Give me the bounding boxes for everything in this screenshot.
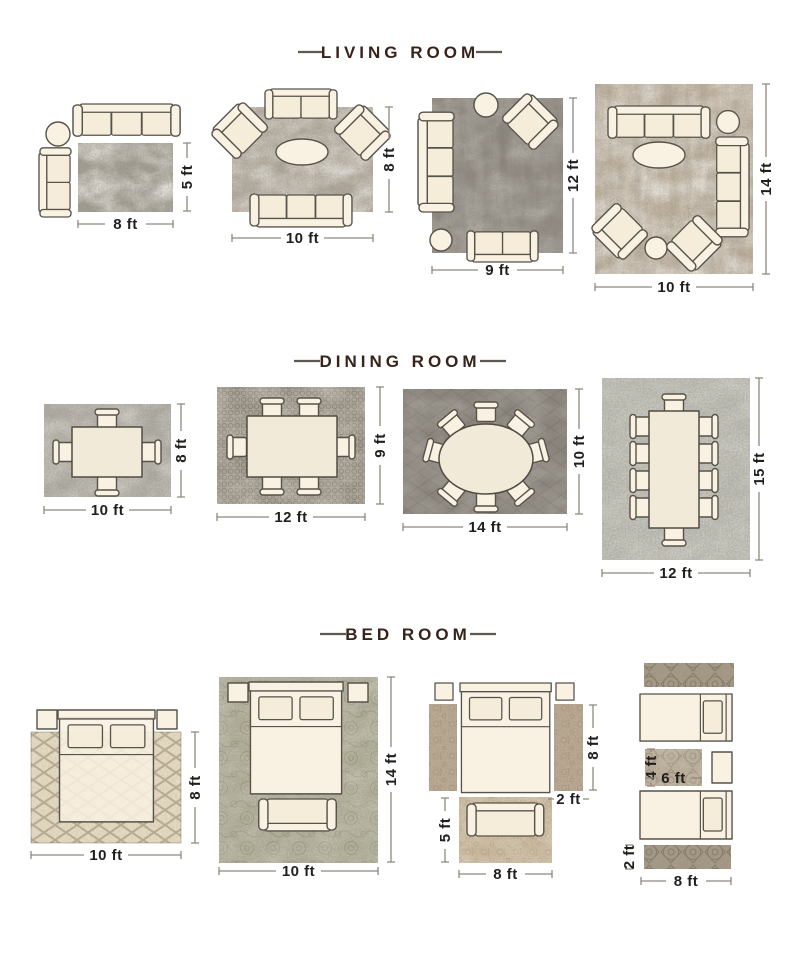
ottoman [430, 229, 452, 251]
chair-left-3 [630, 469, 650, 493]
nightstand-right [348, 683, 368, 702]
runner-bottom [644, 845, 731, 869]
dim-label: 14 ft [383, 753, 400, 786]
chair-bottom [95, 477, 119, 497]
layout-bed-runners: 8 ft 2 ft 5 ft 8 ft [429, 683, 602, 883]
layout-dining-12x15: 15 ft 12 ft [602, 378, 768, 582]
dim-height: 10 ft [571, 389, 588, 514]
dim-runner-width: 2 ft [621, 845, 638, 870]
dim-label: 8 ft [173, 438, 190, 463]
section-bed-room: BED ROOM 8 ft 10 ft [31, 625, 734, 890]
dim-label: 10 ft [282, 863, 315, 880]
rug-size-guide: LIVING ROOM 5 ft 8 ft [0, 0, 800, 978]
dim-width: 9 ft [432, 262, 563, 279]
chair-left [227, 435, 247, 459]
chair-right-3 [699, 469, 719, 493]
section-header-living-room: LIVING ROOM [298, 43, 502, 62]
dim-height: 8 ft [173, 404, 190, 497]
side-table [46, 122, 70, 146]
section-title: DINING ROOM [319, 352, 480, 371]
layout-dining-10x8: 8 ft 10 ft [44, 404, 190, 519]
dim-label: 5 ft [179, 165, 196, 190]
runner-top [644, 663, 734, 687]
dim-width: 12 ft [602, 565, 750, 582]
dim-label: 2 ft [556, 791, 581, 808]
nightstand-left [37, 710, 57, 729]
dim-width: 10 ft [232, 230, 373, 247]
nightstand-left [435, 683, 453, 700]
layout-dining-12x9: 9 ft 12 ft [217, 387, 389, 526]
foot-sofa [467, 803, 544, 836]
layout-twin-beds: 4 ft 6 ft 2 ft 8 ft [621, 663, 734, 890]
bed [460, 683, 551, 793]
dim-label: 6 ft [661, 770, 686, 787]
nightstand-left [228, 683, 248, 702]
side-table [717, 111, 740, 134]
chair-right [142, 440, 162, 464]
dining-table [649, 411, 699, 528]
dim-height: 9 ft [372, 387, 389, 504]
runner-left [429, 704, 457, 791]
dim-width: 10 ft [595, 279, 753, 296]
rug-living-8x5 [78, 143, 173, 212]
layout-bed-10x8: 8 ft 10 ft [31, 710, 204, 864]
dim-label: 2 ft [621, 845, 638, 870]
twin-bed-bottom [640, 791, 732, 839]
sofa-top [608, 106, 710, 138]
chair-right-4 [699, 496, 719, 520]
nightstand-right [556, 683, 574, 700]
dim-label: 4 ft [643, 755, 660, 780]
chair-left-2 [630, 442, 650, 466]
dim-width: 12 ft [217, 509, 365, 526]
dim-label: 8 ft [187, 775, 204, 800]
dim-label: 12 ft [274, 509, 307, 526]
dim-label: 10 ft [657, 279, 690, 296]
section-title: LIVING ROOM [321, 43, 479, 62]
dim-foot-rug-height: 5 ft [437, 798, 454, 862]
chair-right [336, 435, 356, 459]
dim-label: 8 ft [585, 735, 602, 760]
dim-label: 9 ft [372, 433, 389, 458]
chair-top-2 [297, 398, 321, 418]
layout-living-10x8: 8 ft 10 ft [209, 89, 398, 247]
chair-top [95, 409, 119, 429]
dim-width: 10 ft [44, 502, 171, 519]
foot-bench [259, 799, 337, 831]
chair-right-1 [699, 415, 719, 439]
section-dining-room: DINING ROOM 8 ft 10 ft [44, 352, 768, 582]
dim-label: 8 ft [113, 216, 138, 233]
coffee-table [633, 142, 685, 168]
section-header-dining-room: DINING ROOM [294, 352, 506, 371]
layout-dining-14x10: 10 ft 14 ft [403, 389, 588, 536]
dim-label: 10 ft [571, 435, 588, 468]
sofa-right [716, 137, 749, 237]
layout-living-10x14: 14 ft 10 ft [589, 84, 775, 296]
sofa-left [418, 112, 454, 212]
dim-label: 10 ft [89, 847, 122, 864]
ottoman-cushion [712, 752, 732, 783]
section-living-room: LIVING ROOM 5 ft 8 ft [39, 43, 775, 296]
dim-label: 10 ft [91, 502, 124, 519]
nightstand-right [157, 710, 177, 729]
dim-foot-rug-width: 8 ft [459, 866, 552, 883]
dim-height: 14 ft [758, 84, 775, 274]
chair-bottom [662, 527, 686, 547]
dim-runner-length: 8 ft [585, 705, 602, 790]
layout-living-8x5: 5 ft 8 ft [39, 104, 196, 233]
dim-label: 8 ft [674, 873, 699, 890]
dim-height: 8 ft [187, 732, 204, 843]
layout-bed-10x14: 14 ft 10 ft [219, 677, 400, 880]
dim-width: 10 ft [219, 863, 378, 880]
dim-width: 8 ft [78, 216, 173, 233]
chair-left-4 [630, 496, 650, 520]
dim-label: 14 ft [758, 162, 775, 195]
dim-height: 5 ft [179, 143, 196, 211]
chair-bottom-1 [260, 476, 284, 496]
dim-label: 14 ft [468, 519, 501, 536]
twin-bed-top [640, 694, 732, 741]
dim-label: 8 ft [381, 147, 398, 172]
coffee-table [276, 139, 328, 165]
sofa-left [39, 148, 71, 217]
dim-label: 8 ft [493, 866, 518, 883]
dim-label: 10 ft [286, 230, 319, 247]
dim-runner-length: 8 ft [641, 873, 731, 890]
chair-bottom [474, 493, 498, 513]
side-table [474, 93, 498, 117]
dim-runner-width: 2 ft [548, 791, 589, 808]
dim-label: 12 ft [565, 159, 582, 192]
rug-size-guide-figure: LIVING ROOM 5 ft 8 ft [0, 0, 800, 978]
sofa-top [265, 89, 337, 119]
dim-width: 14 ft [403, 519, 567, 536]
dim-label: 9 ft [485, 262, 510, 279]
chair-top [474, 402, 498, 422]
dim-width: 10 ft [31, 847, 181, 864]
dining-table [247, 416, 337, 477]
dim-label: 12 ft [659, 565, 692, 582]
dim-label: 15 ft [751, 452, 768, 485]
chair-top-1 [260, 398, 284, 418]
dining-table [72, 427, 142, 477]
chair-bottom-2 [297, 476, 321, 496]
runner-right [554, 704, 583, 791]
bed [249, 682, 343, 794]
sofa-bottom [467, 231, 538, 262]
sofa-top [73, 104, 180, 136]
layout-living-9x12: 12 ft 9 ft [418, 91, 582, 279]
chair-left-1 [630, 415, 650, 439]
chair-right-2 [699, 442, 719, 466]
dim-label: 5 ft [437, 818, 454, 843]
chair-left [53, 440, 73, 464]
section-header-bed-room: BED ROOM [320, 625, 496, 644]
oval-dining-table [439, 424, 533, 494]
dim-height: 8 ft [381, 107, 398, 212]
dim-height: 12 ft [565, 98, 582, 253]
sofa-bottom [250, 194, 352, 227]
bed [58, 710, 155, 822]
ottoman [645, 237, 667, 259]
dim-height: 15 ft [751, 378, 768, 560]
dim-height: 14 ft [383, 677, 400, 862]
section-title: BED ROOM [345, 625, 471, 644]
